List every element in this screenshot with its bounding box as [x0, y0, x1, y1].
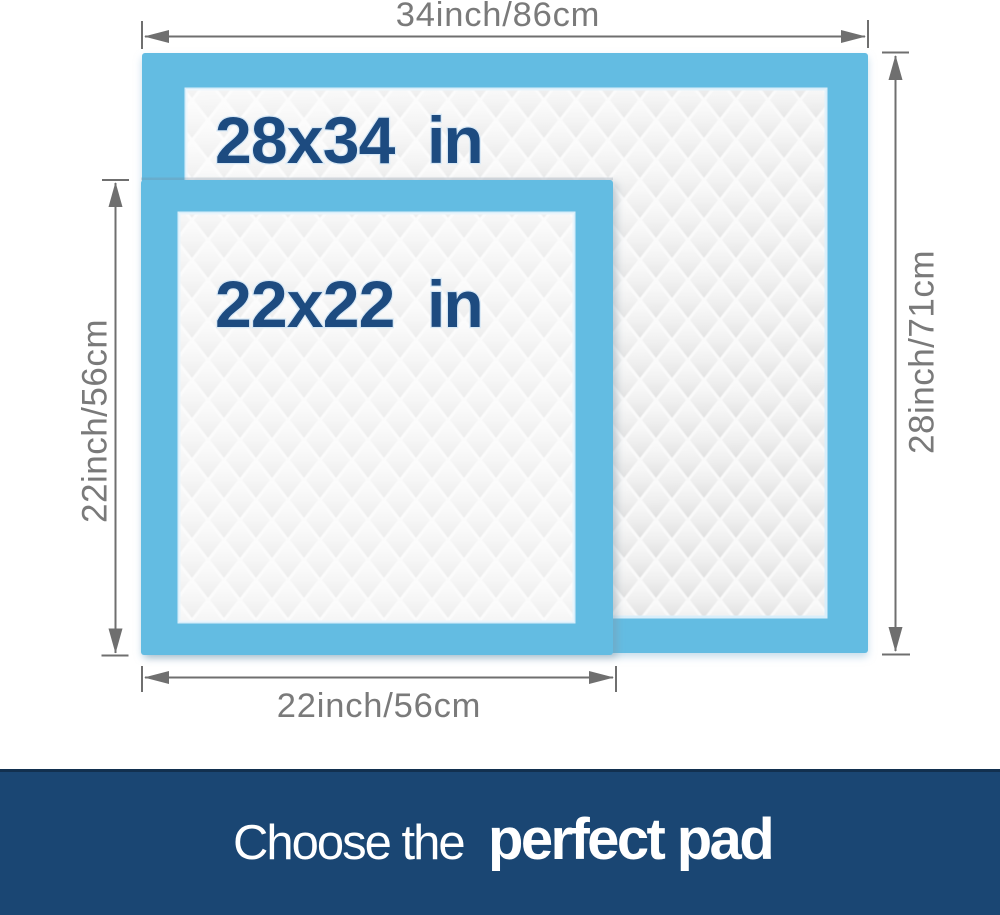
svg-text:in: in — [427, 267, 482, 341]
svg-text:22x22: 22x22 — [215, 267, 395, 341]
svg-text:Choose the: Choose the — [233, 816, 464, 870]
svg-text:28x34: 28x34 — [215, 103, 396, 177]
svg-text:34inch/86cm: 34inch/86cm — [396, 0, 600, 34]
svg-text:in: in — [427, 103, 482, 177]
svg-text:perfect pad: perfect pad — [488, 807, 772, 872]
svg-text:22inch/56cm: 22inch/56cm — [277, 687, 481, 725]
svg-text:28inch/71cm: 28inch/71cm — [903, 250, 942, 454]
svg-text:22inch/56cm: 22inch/56cm — [76, 319, 115, 523]
